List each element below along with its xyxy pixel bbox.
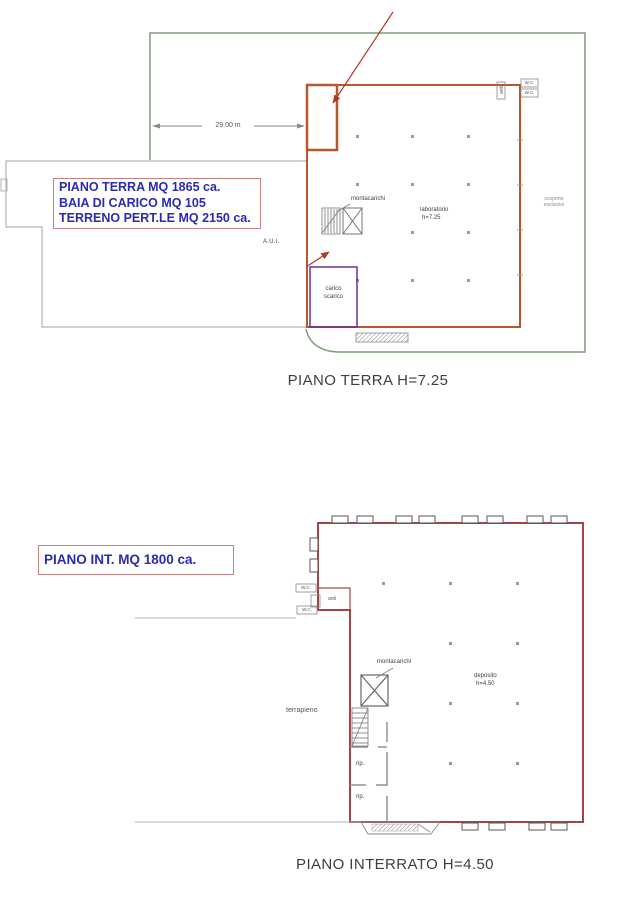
floor-plan-sheet: PIANO TERRA MQ 1865 ca. BAIA DI CARICO M… — [0, 0, 632, 898]
wc-label: W.C. — [297, 606, 317, 614]
laboratorio-label: laboratorio — [420, 207, 448, 215]
goods-lift — [343, 208, 362, 234]
esclusivo-label: esclusivo — [536, 202, 572, 208]
basement-montacarichi-label: montacarichi — [366, 659, 422, 667]
loading-dock-hatch — [356, 333, 408, 342]
window-wells-left — [310, 538, 318, 572]
entry-bay-outline — [307, 85, 337, 150]
entrance-arrow — [333, 12, 393, 103]
staircase — [322, 208, 340, 234]
carico-label: carico — [310, 286, 357, 294]
aui-label: A.U.I. — [263, 239, 280, 247]
loading-arrow — [306, 252, 329, 267]
area-line: TERRENO PERT.LE MQ 2150 ca. — [54, 211, 260, 227]
basement-caption: PIANO INTERRATO H=4.50 — [280, 856, 510, 873]
ground-floor-area-box: PIANO TERRA MQ 1865 ca. BAIA DI CARICO M… — [53, 178, 261, 229]
rip-label: rip. — [356, 761, 364, 769]
area-line: PIANO TERRA MQ 1865 ca. — [54, 180, 260, 196]
basement-montacarichi-leader — [376, 668, 393, 678]
window-wells-bottom — [462, 823, 567, 830]
wc-label: W.C. — [521, 79, 538, 87]
scarico-label: scarico — [310, 294, 357, 302]
wc-label: W.C. — [296, 584, 316, 592]
access-ramp — [361, 822, 440, 834]
basement-goods-lift — [361, 675, 388, 706]
rip-label: rip. — [356, 794, 364, 802]
basement-outline — [318, 523, 583, 822]
terrain-lines — [135, 618, 361, 822]
basement-area-box: PIANO INT. MQ 1800 ca. — [38, 545, 234, 575]
anti-label: anti — [499, 78, 505, 102]
plan-linework — [0, 0, 632, 898]
deposito-height-label: h=4.50 — [476, 681, 495, 689]
area-line: BAIA DI CARICO MQ 105 — [54, 196, 260, 212]
ground-floor-caption: PIANO TERRA H=7.25 — [258, 372, 478, 389]
dimension-label: 29.00 m — [202, 121, 254, 131]
basement-staircase — [352, 708, 368, 746]
window-wells-top — [332, 516, 567, 523]
basement-anti-label: anti — [328, 596, 336, 602]
column-dots — [356, 135, 470, 282]
terrapieno-label: terrapieno — [286, 707, 318, 714]
deposito-label: deposito — [474, 673, 497, 681]
montacarichi-label: montacarichi — [342, 196, 394, 204]
area-line: PIANO INT. MQ 1800 ca. — [39, 546, 233, 573]
basement-column-dots — [382, 582, 519, 765]
laboratorio-height-label: h=7.25 — [422, 215, 441, 223]
wc-label: W.C. — [521, 89, 538, 97]
